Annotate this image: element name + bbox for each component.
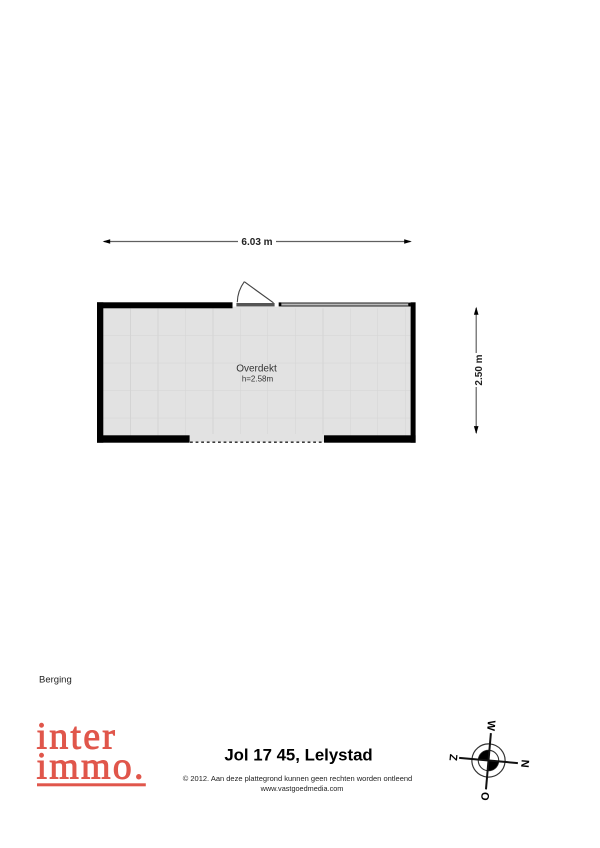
svg-text:W: W bbox=[484, 720, 497, 732]
svg-text:Z: Z bbox=[446, 753, 459, 761]
svg-text:www.vastgoedmedia.com: www.vastgoedmedia.com bbox=[260, 784, 344, 793]
svg-text:Berging: Berging bbox=[39, 675, 72, 686]
svg-text:O: O bbox=[478, 791, 491, 801]
svg-text:Overdekt: Overdekt bbox=[236, 363, 277, 374]
svg-text:2.50 m: 2.50 m bbox=[474, 354, 485, 385]
svg-text:N: N bbox=[518, 759, 531, 768]
svg-text:© 2012. Aan deze plattegrond k: © 2012. Aan deze plattegrond kunnen geen… bbox=[183, 774, 412, 783]
svg-text:6.03 m: 6.03 m bbox=[241, 237, 272, 248]
svg-text:immo.: immo. bbox=[37, 745, 146, 787]
svg-text:Jol 17 45, Lelystad: Jol 17 45, Lelystad bbox=[224, 746, 372, 765]
svg-text:h=2.58m: h=2.58m bbox=[242, 375, 274, 384]
